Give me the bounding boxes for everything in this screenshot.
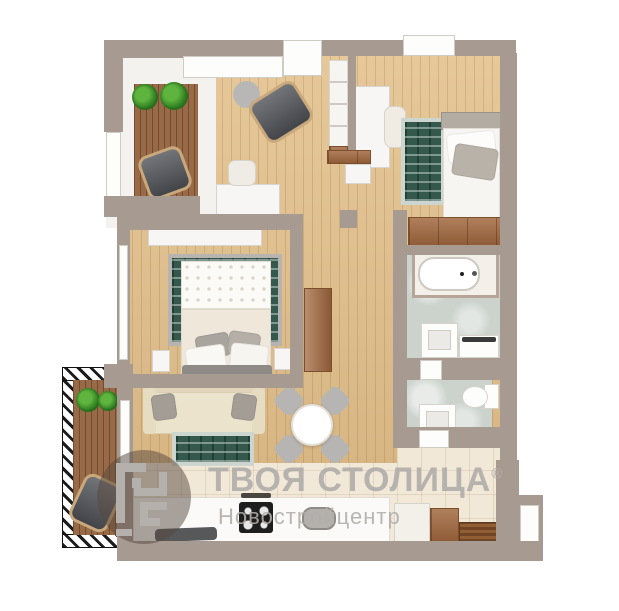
plant-icon — [76, 388, 100, 412]
entry-wood-cabinet — [430, 508, 459, 543]
balcony-hatch-top — [62, 367, 108, 381]
door-opening — [419, 430, 449, 448]
window — [283, 40, 322, 76]
office-desk-chair — [228, 160, 256, 186]
wall-segment — [104, 40, 123, 132]
watermark-brand-text: ТВОЯ СТОЛИЦА — [208, 461, 491, 499]
wall-segment — [348, 56, 356, 162]
plant-icon — [98, 391, 118, 411]
brand-logo-icon — [94, 447, 194, 547]
plant-icon — [160, 82, 188, 110]
wall-segment — [340, 210, 357, 228]
wall-segment — [121, 214, 303, 230]
doormat — [459, 522, 497, 543]
hall-console-top — [327, 150, 371, 164]
window — [106, 132, 121, 198]
office-desk — [216, 184, 280, 215]
wall-segment — [121, 374, 303, 388]
door-opening — [420, 360, 442, 380]
shelving-unit — [329, 60, 348, 148]
entrance-door — [520, 505, 539, 543]
washing-machine-panel — [462, 337, 496, 342]
nightstand — [152, 350, 170, 372]
watermark-brand: ТВОЯ СТОЛИЦА® — [208, 461, 503, 500]
bedroom2-blanket — [451, 143, 499, 181]
bathtub-basin — [418, 257, 480, 291]
bedroom-dresser — [148, 228, 262, 246]
bedroom2-wardrobe — [408, 217, 502, 247]
window — [403, 35, 455, 56]
watermark-subtitle: Новостройцентр — [218, 504, 401, 530]
plant-icon — [132, 84, 158, 110]
dining-table — [291, 404, 333, 446]
bed-headboard-tufted — [181, 261, 271, 309]
wall-segment — [395, 245, 502, 255]
bedroom-door-leaf — [304, 288, 332, 372]
hall-console — [345, 164, 371, 184]
window — [119, 245, 128, 360]
bedroom2-rug — [401, 118, 445, 205]
wall-segment — [395, 358, 502, 380]
bathroom-sink-basin — [428, 330, 451, 350]
toilet-bowl — [462, 386, 488, 408]
window — [183, 56, 283, 78]
sofa-pillow — [150, 392, 177, 421]
bathtub-drain — [460, 272, 464, 276]
bathtub-faucet — [472, 271, 477, 276]
wall-segment — [500, 53, 517, 460]
wall-segment — [290, 217, 303, 383]
floor-plan-render: ТВОЯ СТОЛИЦА® Новостройцентр — [0, 0, 619, 611]
registered-mark: ® — [491, 466, 503, 483]
sofa-pillow — [230, 392, 257, 421]
